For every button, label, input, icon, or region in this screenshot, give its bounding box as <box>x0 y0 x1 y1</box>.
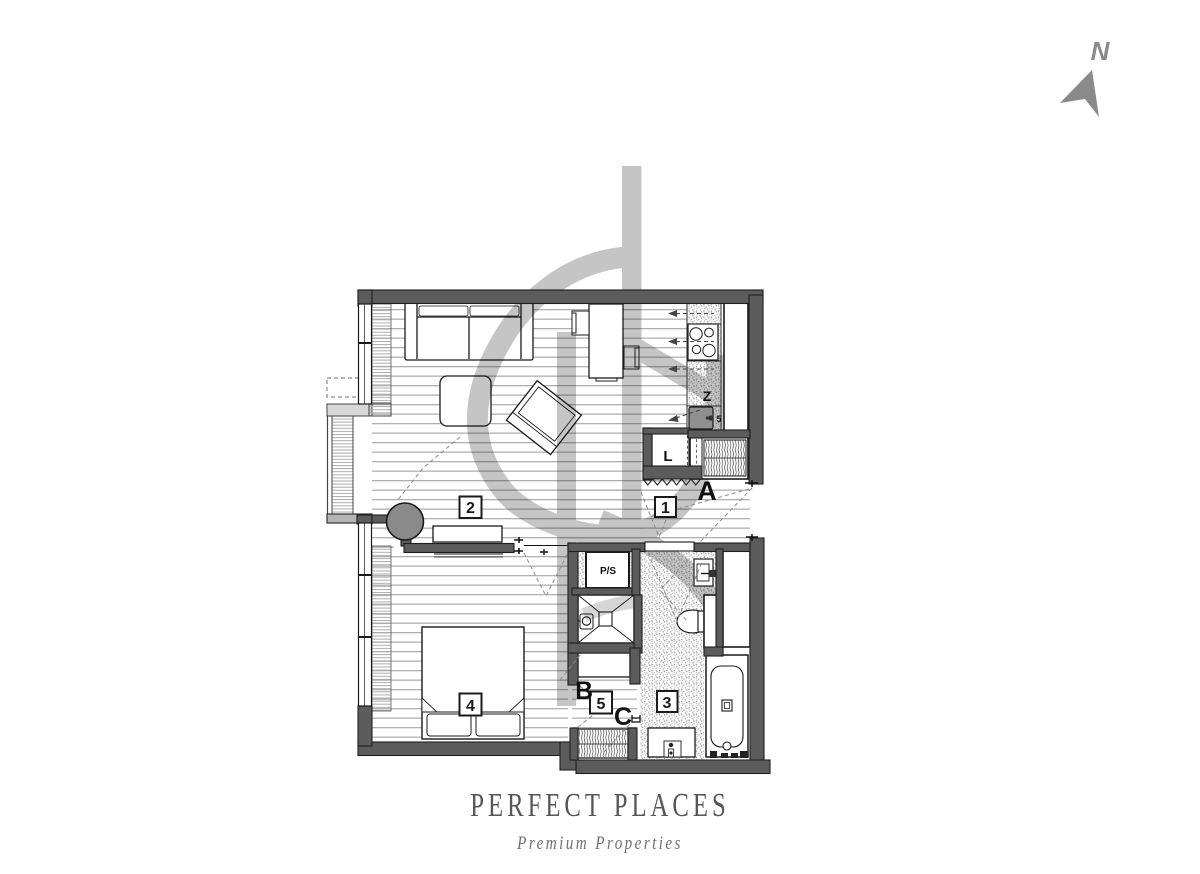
svg-text:Premium Properties: Premium Properties <box>516 832 683 853</box>
svg-text:4: 4 <box>466 698 475 715</box>
svg-text:C: C <box>614 703 632 731</box>
svg-text:2: 2 <box>466 500 475 517</box>
svg-text:5: 5 <box>716 414 721 424</box>
svg-text:P/S: P/S <box>600 566 616 577</box>
svg-text:L: L <box>663 448 672 465</box>
svg-text:5: 5 <box>597 696 606 713</box>
svg-text:A: A <box>697 476 717 506</box>
svg-text:1: 1 <box>661 500 670 517</box>
svg-text:3: 3 <box>663 695 672 712</box>
svg-text:B: B <box>575 677 593 705</box>
svg-text:PERFECT PLACES: PERFECT PLACES <box>470 787 729 824</box>
svg-text:N: N <box>1091 36 1111 66</box>
svg-text:Z: Z <box>703 388 712 404</box>
